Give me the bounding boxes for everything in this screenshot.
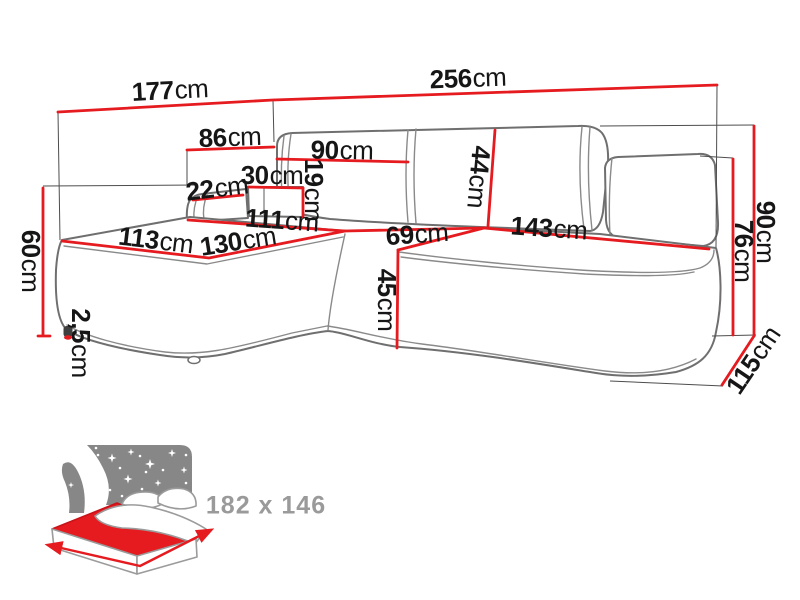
dimension-label-60cm: 60cm xyxy=(18,230,44,293)
sleeper-function-icon xyxy=(48,445,211,574)
dimension-label-143cm: 143cm xyxy=(510,212,588,243)
front-foot xyxy=(188,357,200,364)
dimension-label-256cm: 256cm xyxy=(429,64,506,93)
dimension-label-86cm: 86cm xyxy=(198,123,261,151)
dimension-label-2-5cm: 2,5cm xyxy=(68,308,94,377)
dimension-label-45cm: 45cm xyxy=(374,269,400,332)
dimension-label-44cm: 44cm xyxy=(463,145,494,210)
dimension-label-177cm: 177cm xyxy=(131,75,209,105)
dimension-label-22cm: 22cm xyxy=(184,171,249,204)
dimension-label-30cm: 30cm xyxy=(241,162,304,188)
sofa-dimension-diagram: 177cm 256cm 86cm 90cm 30cm 19cm 22cm 44c… xyxy=(0,0,800,600)
dimension-label-90cm-height: 90cm xyxy=(753,201,779,264)
pillow-right xyxy=(158,488,196,509)
right-armrest-shape xyxy=(605,154,718,246)
dimension-label-69cm: 69cm xyxy=(385,219,449,249)
sleeping-area-size: 182 x 146 xyxy=(206,494,326,519)
